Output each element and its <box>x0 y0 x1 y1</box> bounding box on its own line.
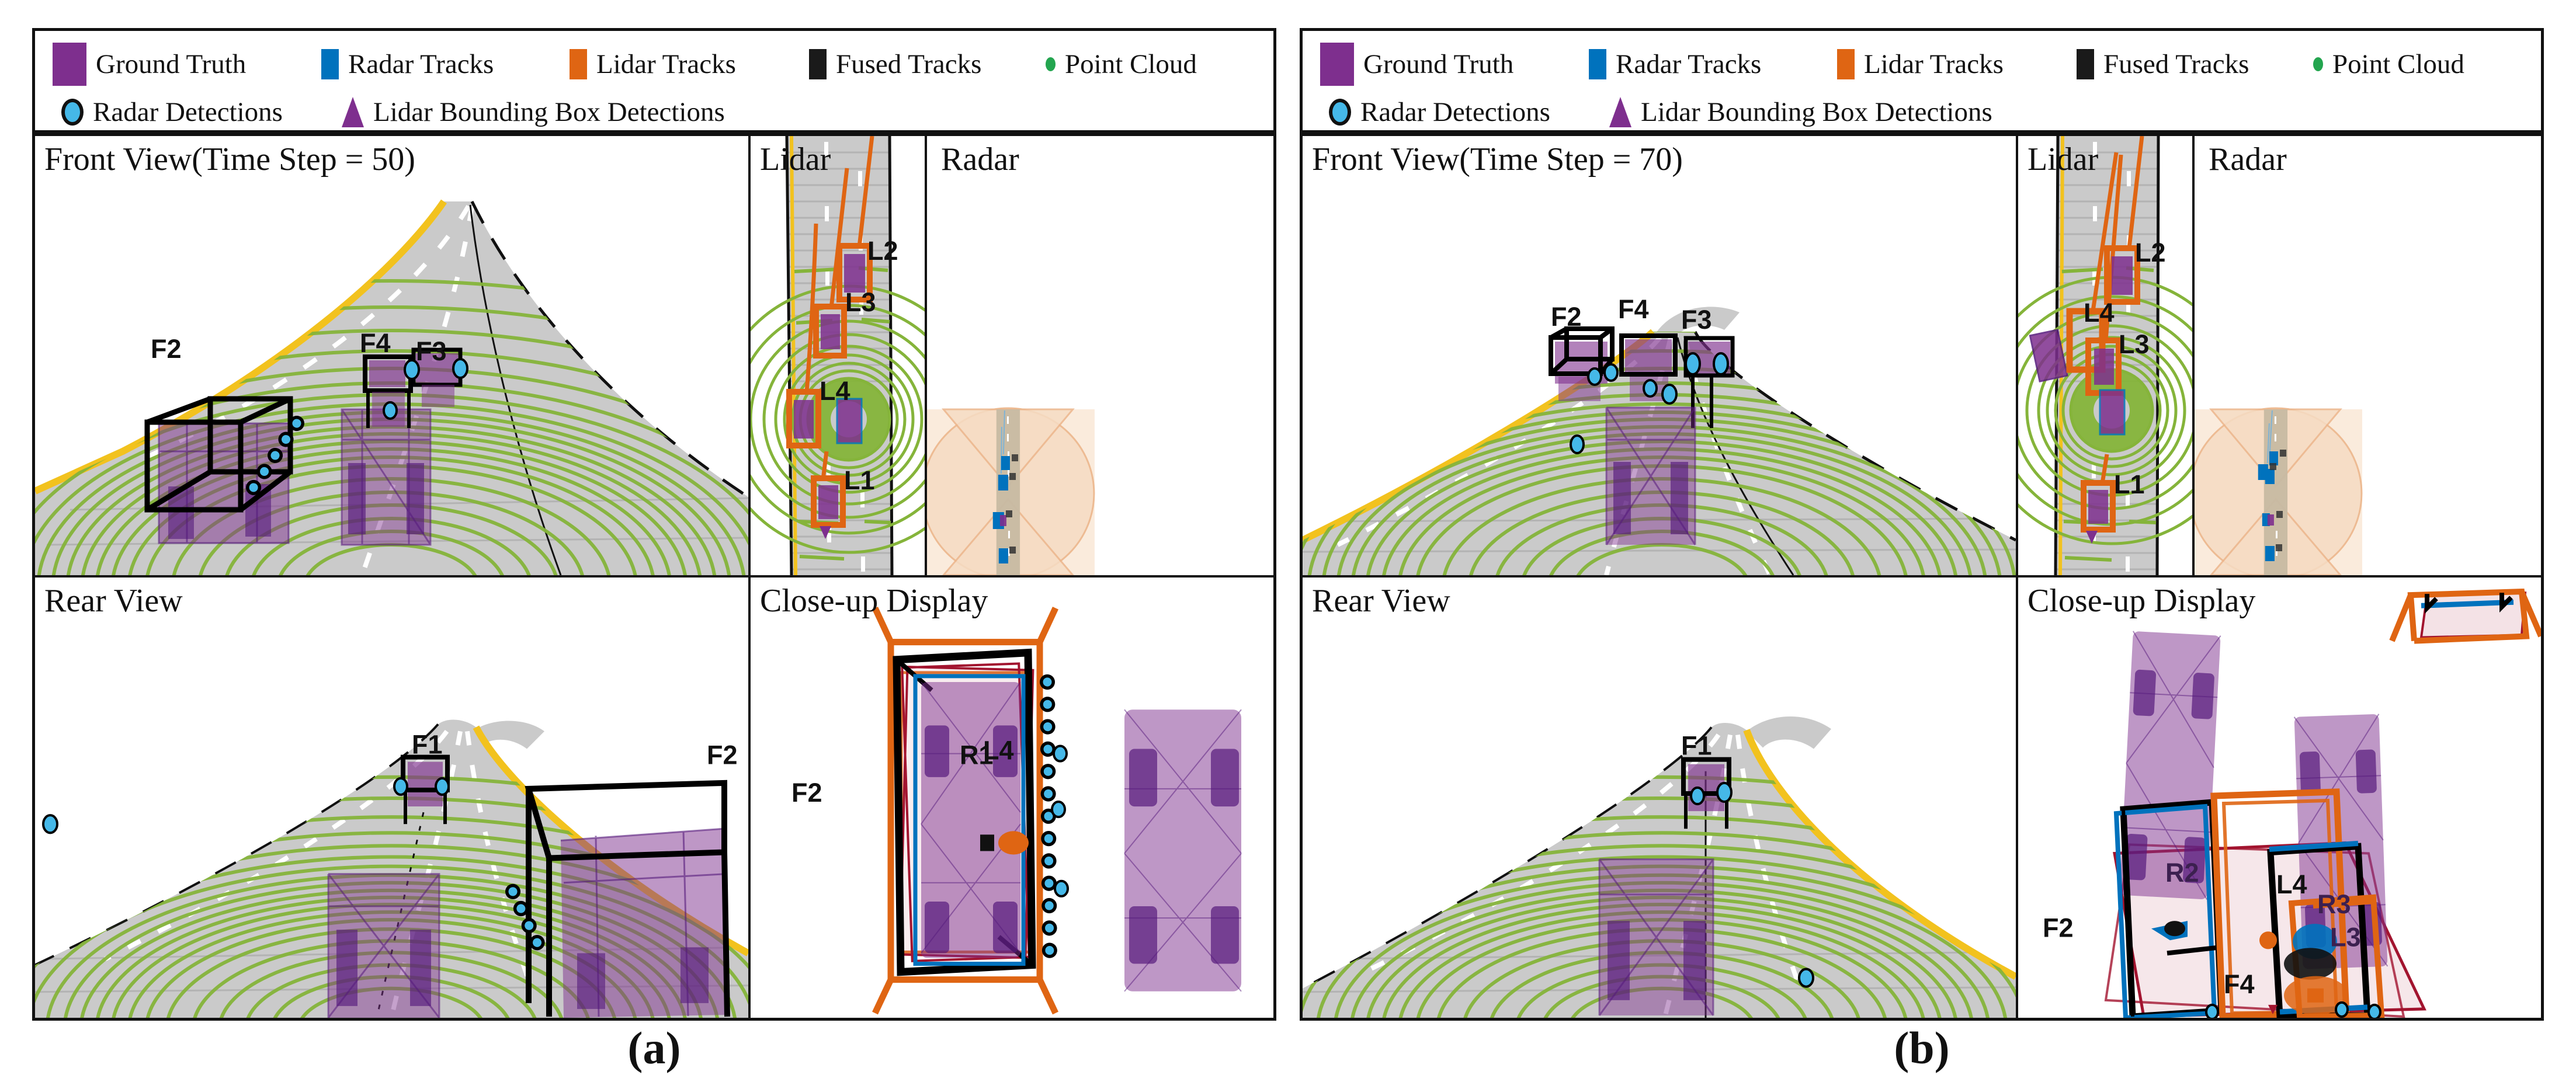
lidar-tracks-swatch <box>1837 49 1855 79</box>
ego-vehicle <box>342 409 431 545</box>
radar-view-a: Radar <box>927 136 1273 577</box>
radar-scene <box>927 136 1273 575</box>
label-l3: L3 <box>2330 922 2361 952</box>
legend-b: Ground Truth Radar Tracks Lidar Tracks F… <box>1300 28 2544 133</box>
radar-detection-dot <box>1571 436 1584 453</box>
label-f2: F2 <box>1551 302 1582 332</box>
legend-label: Lidar Tracks <box>596 48 736 80</box>
label-r3: R3 <box>2317 889 2351 919</box>
label-f2: F2 <box>151 334 182 364</box>
radar-scene <box>2195 136 2541 575</box>
lidar-view-title: Lidar <box>760 141 831 178</box>
lidar-detection-triangle <box>1609 97 1631 127</box>
lidar-view-title: Lidar <box>2028 141 2098 178</box>
legend-label: Fused Tracks <box>2103 48 2249 80</box>
radar-coverage-map <box>927 408 1095 575</box>
legend-label: Radar Detections <box>1360 96 1550 128</box>
rear-view-a: Rear View <box>35 577 751 1018</box>
ground-truth-car-right <box>1124 709 1241 991</box>
label-f2: F2 <box>791 778 822 808</box>
label-f1: F1 <box>1681 731 1712 761</box>
legend-label: Radar Tracks <box>348 48 494 80</box>
fused-tracks-swatch <box>2077 49 2094 79</box>
label-f4: F4 <box>2224 969 2255 999</box>
legend-item-point-cloud: Point Cloud <box>1046 41 1197 87</box>
lidar-tracks-swatch <box>570 49 587 79</box>
radar-view-b: Radar <box>2195 136 2541 577</box>
radar-coverage-map <box>2195 408 2362 575</box>
legend-label: Radar Tracks <box>1616 48 1761 80</box>
legend-item-radar-tracks: Radar Tracks <box>321 41 494 87</box>
point-cloud-dot <box>1046 57 1056 71</box>
front-view-title: Front View(Time Step = 70) <box>1312 141 1683 178</box>
closeup-title: Close-up Display <box>760 582 988 620</box>
legend-item-radar-tracks: Radar Tracks <box>1589 41 1761 87</box>
fused-tracks-swatch <box>809 49 827 79</box>
fused-state-mark <box>980 834 994 851</box>
ground-truth-car <box>921 682 1020 958</box>
label-l3: L3 <box>845 287 876 317</box>
radar-detection-dot <box>1799 969 1813 987</box>
legend-label: Lidar Bounding Box Detections <box>373 96 725 128</box>
label-f4: F4 <box>360 328 391 358</box>
radar-tracks-swatch <box>321 49 339 79</box>
label-f2: F2 <box>707 740 738 770</box>
label-r2: R2 <box>2165 858 2199 888</box>
label-l4: L4 <box>2084 298 2115 328</box>
figure-page: Ground Truth Radar Tracks Lidar Tracks F… <box>0 0 2576 1082</box>
radar-detection-column <box>1047 682 1068 959</box>
rear-view-title: Rear View <box>44 582 183 620</box>
rear-view-scene: F1 <box>1303 577 2016 1018</box>
legend-item-radar-detections: Radar Detections <box>61 89 283 135</box>
ego-vehicle <box>1599 860 1713 1015</box>
lidar-state-ellipse <box>998 831 1029 854</box>
lidar-view-a: Lidar <box>751 136 927 577</box>
rear-view-b: Rear View <box>1303 577 2018 1018</box>
legend-item-lidar-detections: Lidar Bounding Box Detections <box>1609 89 1992 135</box>
ego-vehicle <box>1606 408 1695 545</box>
ego-vehicle <box>328 874 439 1018</box>
legend-item-lidar-detections: Lidar Bounding Box Detections <box>342 89 725 135</box>
radar-detection-circle <box>1329 99 1351 126</box>
closeup-title: Close-up Display <box>2028 582 2255 620</box>
legend-item-fused-tracks: Fused Tracks <box>2077 41 2249 87</box>
legend-item-radar-detections: Radar Detections <box>1329 89 1550 135</box>
radar-detection-dot <box>43 815 57 833</box>
legend-label: Point Cloud <box>2332 48 2464 80</box>
label-l2: L2 <box>867 236 898 266</box>
rear-view-scene: F1 F2 <box>35 577 748 1018</box>
closeup-view-a: Close-up Display <box>751 577 1273 1018</box>
front-view-a: Front View(Time Step = 50) <box>35 136 751 577</box>
label-l4: L4 <box>820 376 850 406</box>
legend-item-fused-tracks: Fused Tracks <box>809 41 981 87</box>
rear-view-title: Rear View <box>1312 582 1450 620</box>
legend-item-lidar-tracks: Lidar Tracks <box>570 41 736 87</box>
legend-item-point-cloud: Point Cloud <box>2313 41 2464 87</box>
label-l4: L4 <box>983 736 1014 766</box>
lidar-detection-triangle <box>342 97 364 127</box>
legend-label: Lidar Bounding Box Detections <box>1641 96 1992 128</box>
legend-label: Lidar Tracks <box>1864 48 2004 80</box>
label-f4: F4 <box>1618 294 1649 324</box>
closeup-scene: R2 L4 R3 L3 F2 F4 <box>2018 577 2541 1018</box>
radar-view-title: Radar <box>941 141 1019 178</box>
label-f2: F2 <box>2043 913 2074 942</box>
legend-label: Ground Truth <box>96 48 246 80</box>
front-view-title: Front View(Time Step = 50) <box>44 141 415 178</box>
vehicle-f4 <box>1622 336 1676 403</box>
road-curl <box>1747 716 1831 749</box>
panel-b: Ground Truth Radar Tracks Lidar Tracks F… <box>1300 28 2544 1079</box>
label-l1: L1 <box>844 465 875 495</box>
caption-b: (b) <box>1300 1022 2544 1074</box>
legend-label: Point Cloud <box>1065 48 1197 80</box>
radar-detection-circle <box>61 99 84 126</box>
radar-tracks-swatch <box>1589 49 1606 79</box>
legend-label: Ground Truth <box>1363 48 1513 80</box>
legend-label: Radar Detections <box>93 96 283 128</box>
closeup-view-b: Close-up Display <box>2018 577 2541 1018</box>
legend-item-ground-truth: Ground Truth <box>53 41 246 87</box>
label-f3: F3 <box>416 336 447 366</box>
lidar-scene: L2 L4 L3 L1 <box>2018 136 2192 575</box>
legend-label: Fused Tracks <box>836 48 981 80</box>
label-l2: L2 <box>2135 238 2166 267</box>
panel-a: Ground Truth Radar Tracks Lidar Tracks F… <box>32 28 1276 1079</box>
ground-truth-swatch <box>53 43 86 86</box>
point-cloud-dot <box>2313 57 2323 71</box>
corner-track-box <box>2392 592 2541 641</box>
label-l4: L4 <box>2276 869 2307 899</box>
lidar-scene: L2 L3 L4 L1 <box>751 136 925 575</box>
main-view-a: Front View(Time Step = 50) <box>32 133 1276 1021</box>
front-view-b: Front View(Time Step = 70) <box>1303 136 2018 577</box>
legend-item-ground-truth: Ground Truth <box>1320 41 1513 87</box>
label-l1: L1 <box>2114 469 2145 499</box>
front-view-scene: F2 F4 F3 <box>35 136 748 575</box>
legend-a: Ground Truth Radar Tracks Lidar Tracks F… <box>32 28 1276 133</box>
label-l3: L3 <box>2119 329 2150 359</box>
closeup-scene: R1 L4 F2 <box>751 577 1273 1018</box>
lidar-view-b: Lidar <box>2018 136 2195 577</box>
legend-item-lidar-tracks: Lidar Tracks <box>1837 41 2004 87</box>
front-view-scene: F2 F4 F3 <box>1303 136 2016 575</box>
label-f3: F3 <box>1681 305 1712 335</box>
radar-view-title: Radar <box>2209 141 2287 178</box>
ground-truth-swatch <box>1320 43 1354 86</box>
caption-a: (a) <box>32 1022 1276 1074</box>
main-view-b: Front View(Time Step = 70) <box>1300 133 2544 1021</box>
label-f1: F1 <box>412 729 443 759</box>
